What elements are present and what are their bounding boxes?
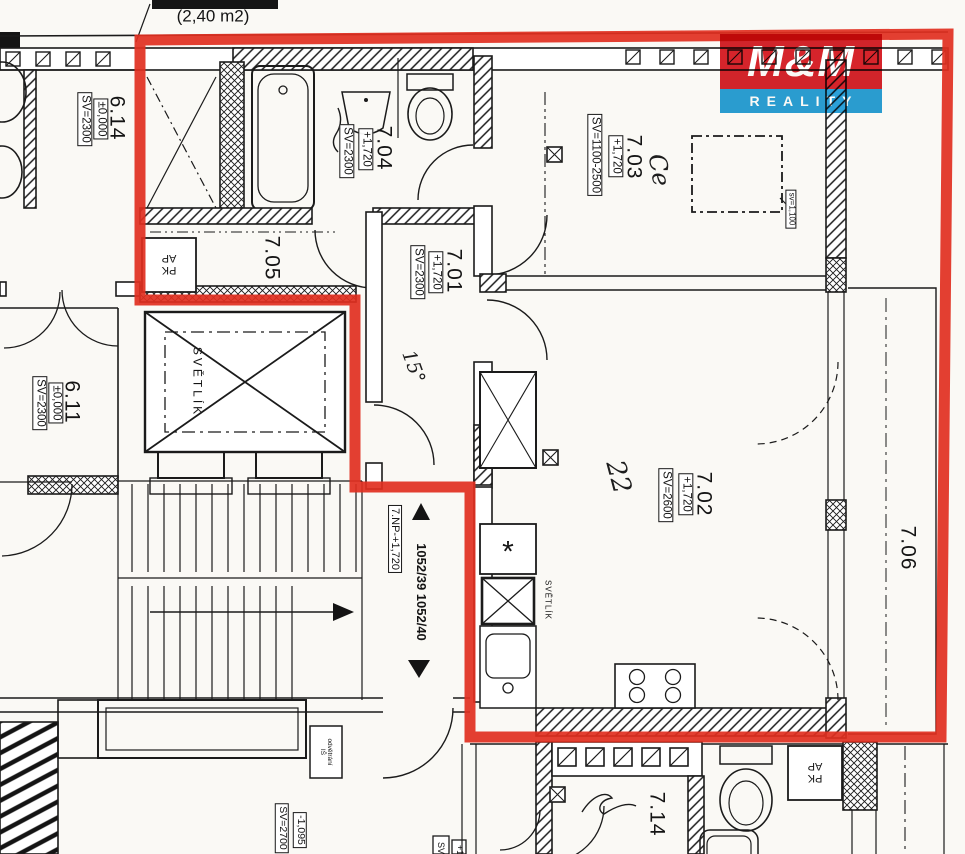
pk-ap-label-2: PK AP xyxy=(808,760,823,784)
room-sv-701: SV=2300 xyxy=(411,245,426,299)
room-sv-614: SV=2300 xyxy=(78,92,93,146)
room-level-703: +1,720 xyxy=(609,135,624,177)
sv-window-label: sv=1,100 xyxy=(786,190,797,229)
pk-text: PK xyxy=(162,264,177,276)
shaft-symbol xyxy=(550,787,565,802)
room-level-701: +1,720 xyxy=(429,251,444,293)
sv-2700-label: SV=2700 xyxy=(275,803,289,853)
hatched-corner xyxy=(0,722,58,854)
stove xyxy=(615,664,695,708)
agency-logo: M&M REALITY xyxy=(720,34,882,113)
room-sv-704: SV=2300 xyxy=(340,124,355,178)
room-number-702: 7.02 xyxy=(692,472,715,517)
clip-plus-label: +1 xyxy=(454,845,464,854)
room-level-702: +1,720 xyxy=(679,473,694,515)
room-number-704: 7.04 xyxy=(372,126,395,171)
kitchen-sink xyxy=(480,626,536,708)
logo-mm: M&M xyxy=(720,34,882,89)
star-symbol: * xyxy=(502,536,514,569)
pk-ap-label-1: PK AP xyxy=(162,252,177,276)
room-number-706: 7.06 xyxy=(896,526,919,571)
room-sv-702: SV=2600 xyxy=(659,468,674,522)
vent-label: odvětrání IŠ xyxy=(319,738,333,765)
pk-text: PK xyxy=(808,772,823,784)
floor-plan-page: M&M REALITY (2,40 m2) 6.14 ±0,000 SV=230… xyxy=(0,0,965,854)
svetlik-small-label: SVĚTLÍK xyxy=(543,580,552,620)
parcel-numbers: 1052/39 1052/40 xyxy=(414,543,428,641)
room-sv-703: SV=1100-2500 xyxy=(588,114,603,196)
ap-text: AP xyxy=(162,252,177,264)
stair-level-label: 7.NP-+1,720 xyxy=(388,505,402,573)
room-level-704: +1,720 xyxy=(359,128,374,170)
handwritten-mark-703: Ce xyxy=(643,152,675,189)
shaft-symbol xyxy=(547,147,562,162)
shaft-wall xyxy=(220,62,244,210)
shaft-symbol xyxy=(543,450,558,465)
room-number-611: 6.11 xyxy=(60,380,83,423)
room-number-614: 6.14 xyxy=(105,96,128,141)
room-level-611: ±0,000 xyxy=(49,382,64,423)
ap-text: AP xyxy=(808,760,823,772)
room-number-701: 7.01 xyxy=(442,249,465,294)
room-sv-611: SV=2300 xyxy=(33,376,48,430)
area-note: (2,40 m2) xyxy=(177,8,250,27)
room-number-714: 7.14 xyxy=(645,792,668,837)
room-number-705: 7.05 xyxy=(260,236,283,281)
level-low-label: -1,095 xyxy=(293,812,307,848)
logo-reality: REALITY xyxy=(720,89,882,113)
clip-sv-label: SV xyxy=(435,842,445,854)
svetlik-label: SVĚTLÍK xyxy=(190,347,203,417)
floor-plan-svg xyxy=(0,0,965,854)
room-level-614: ±0,000 xyxy=(94,98,109,139)
